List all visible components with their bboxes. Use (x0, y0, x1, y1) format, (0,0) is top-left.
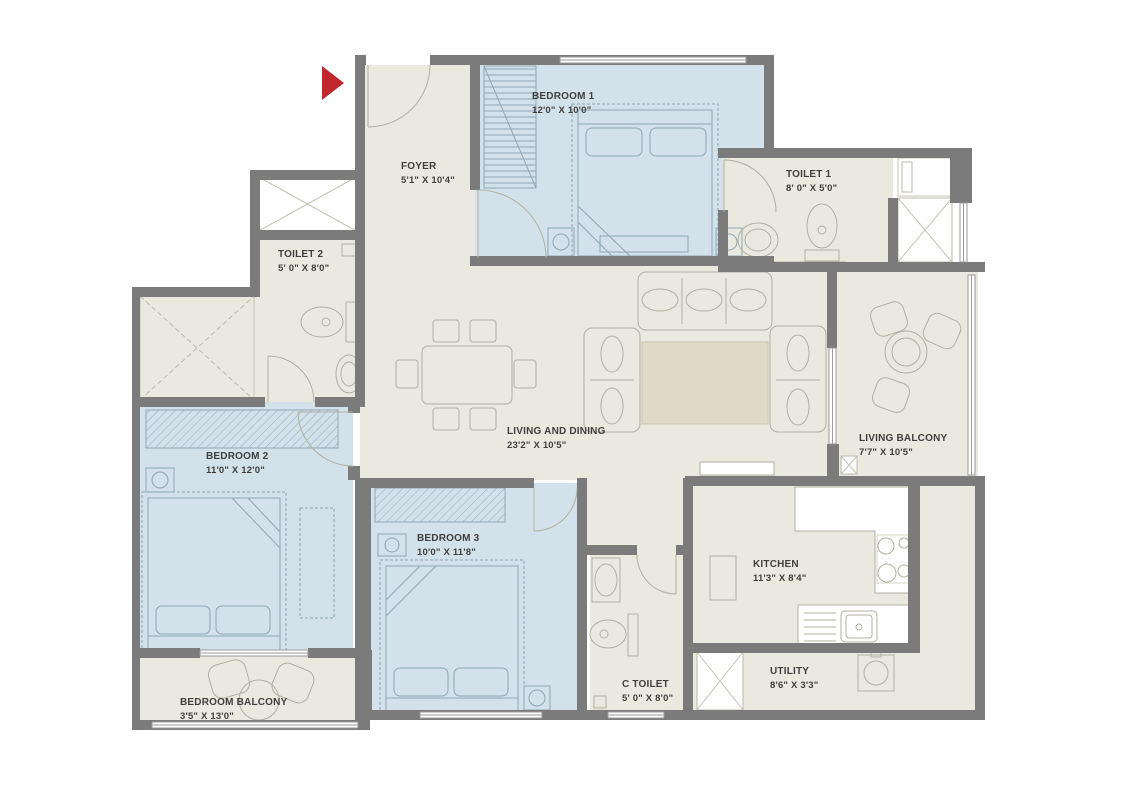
room-label-bedroom-2: BEDROOM 2 11'0" X 12'0" (206, 450, 268, 478)
room-label-toilet-1: TOILET 1 8' 0" X 5'0" (786, 168, 837, 196)
room-label-kitchen: KITCHEN 11'3" X 8'4" (753, 558, 806, 586)
room-label-living-balcony: LIVING BALCONY 7'7" X 10'5" (859, 432, 947, 460)
duct-near-c-toilet (697, 652, 743, 710)
bedroom-2-wardrobe (146, 410, 338, 448)
floor-plan-canvas: BEDROOM 1 12'0" X 10'0" FOYER 5'1" X 10'… (0, 0, 1122, 785)
living-rug (642, 342, 768, 424)
entry-door-gap (366, 55, 430, 65)
bedroom-1-wardrobe (484, 66, 536, 188)
tv-console (700, 462, 774, 475)
entry-arrow-icon (322, 66, 344, 100)
room-label-bedroom-balcony: BEDROOM BALCONY 3'5" X 13'0" (180, 696, 287, 724)
room-label-utility: UTILITY 8'6" X 3'3" (770, 665, 818, 693)
column-marker (841, 456, 857, 474)
room-label-bedroom-3: BEDROOM 3 10'0" X 11'8" (417, 532, 479, 560)
terrace-cross (140, 296, 254, 400)
corridor-floor (585, 478, 685, 553)
room-label-living-dining: LIVING AND DINING 23'2" X 10'5" (507, 425, 606, 453)
room-label-foyer: FOYER 5'1" X 10'4" (401, 160, 455, 188)
duct-top-left (255, 175, 360, 233)
room-label-bedroom-1: BEDROOM 1 12'0" X 10'0" (532, 90, 594, 118)
room-label-toilet-2: TOILET 2 5' 0" X 8'0" (278, 248, 329, 276)
bedroom-3-wardrobe (375, 488, 505, 522)
room-label-c-toilet: C TOILET 5' 0" X 8'0" (622, 678, 673, 706)
